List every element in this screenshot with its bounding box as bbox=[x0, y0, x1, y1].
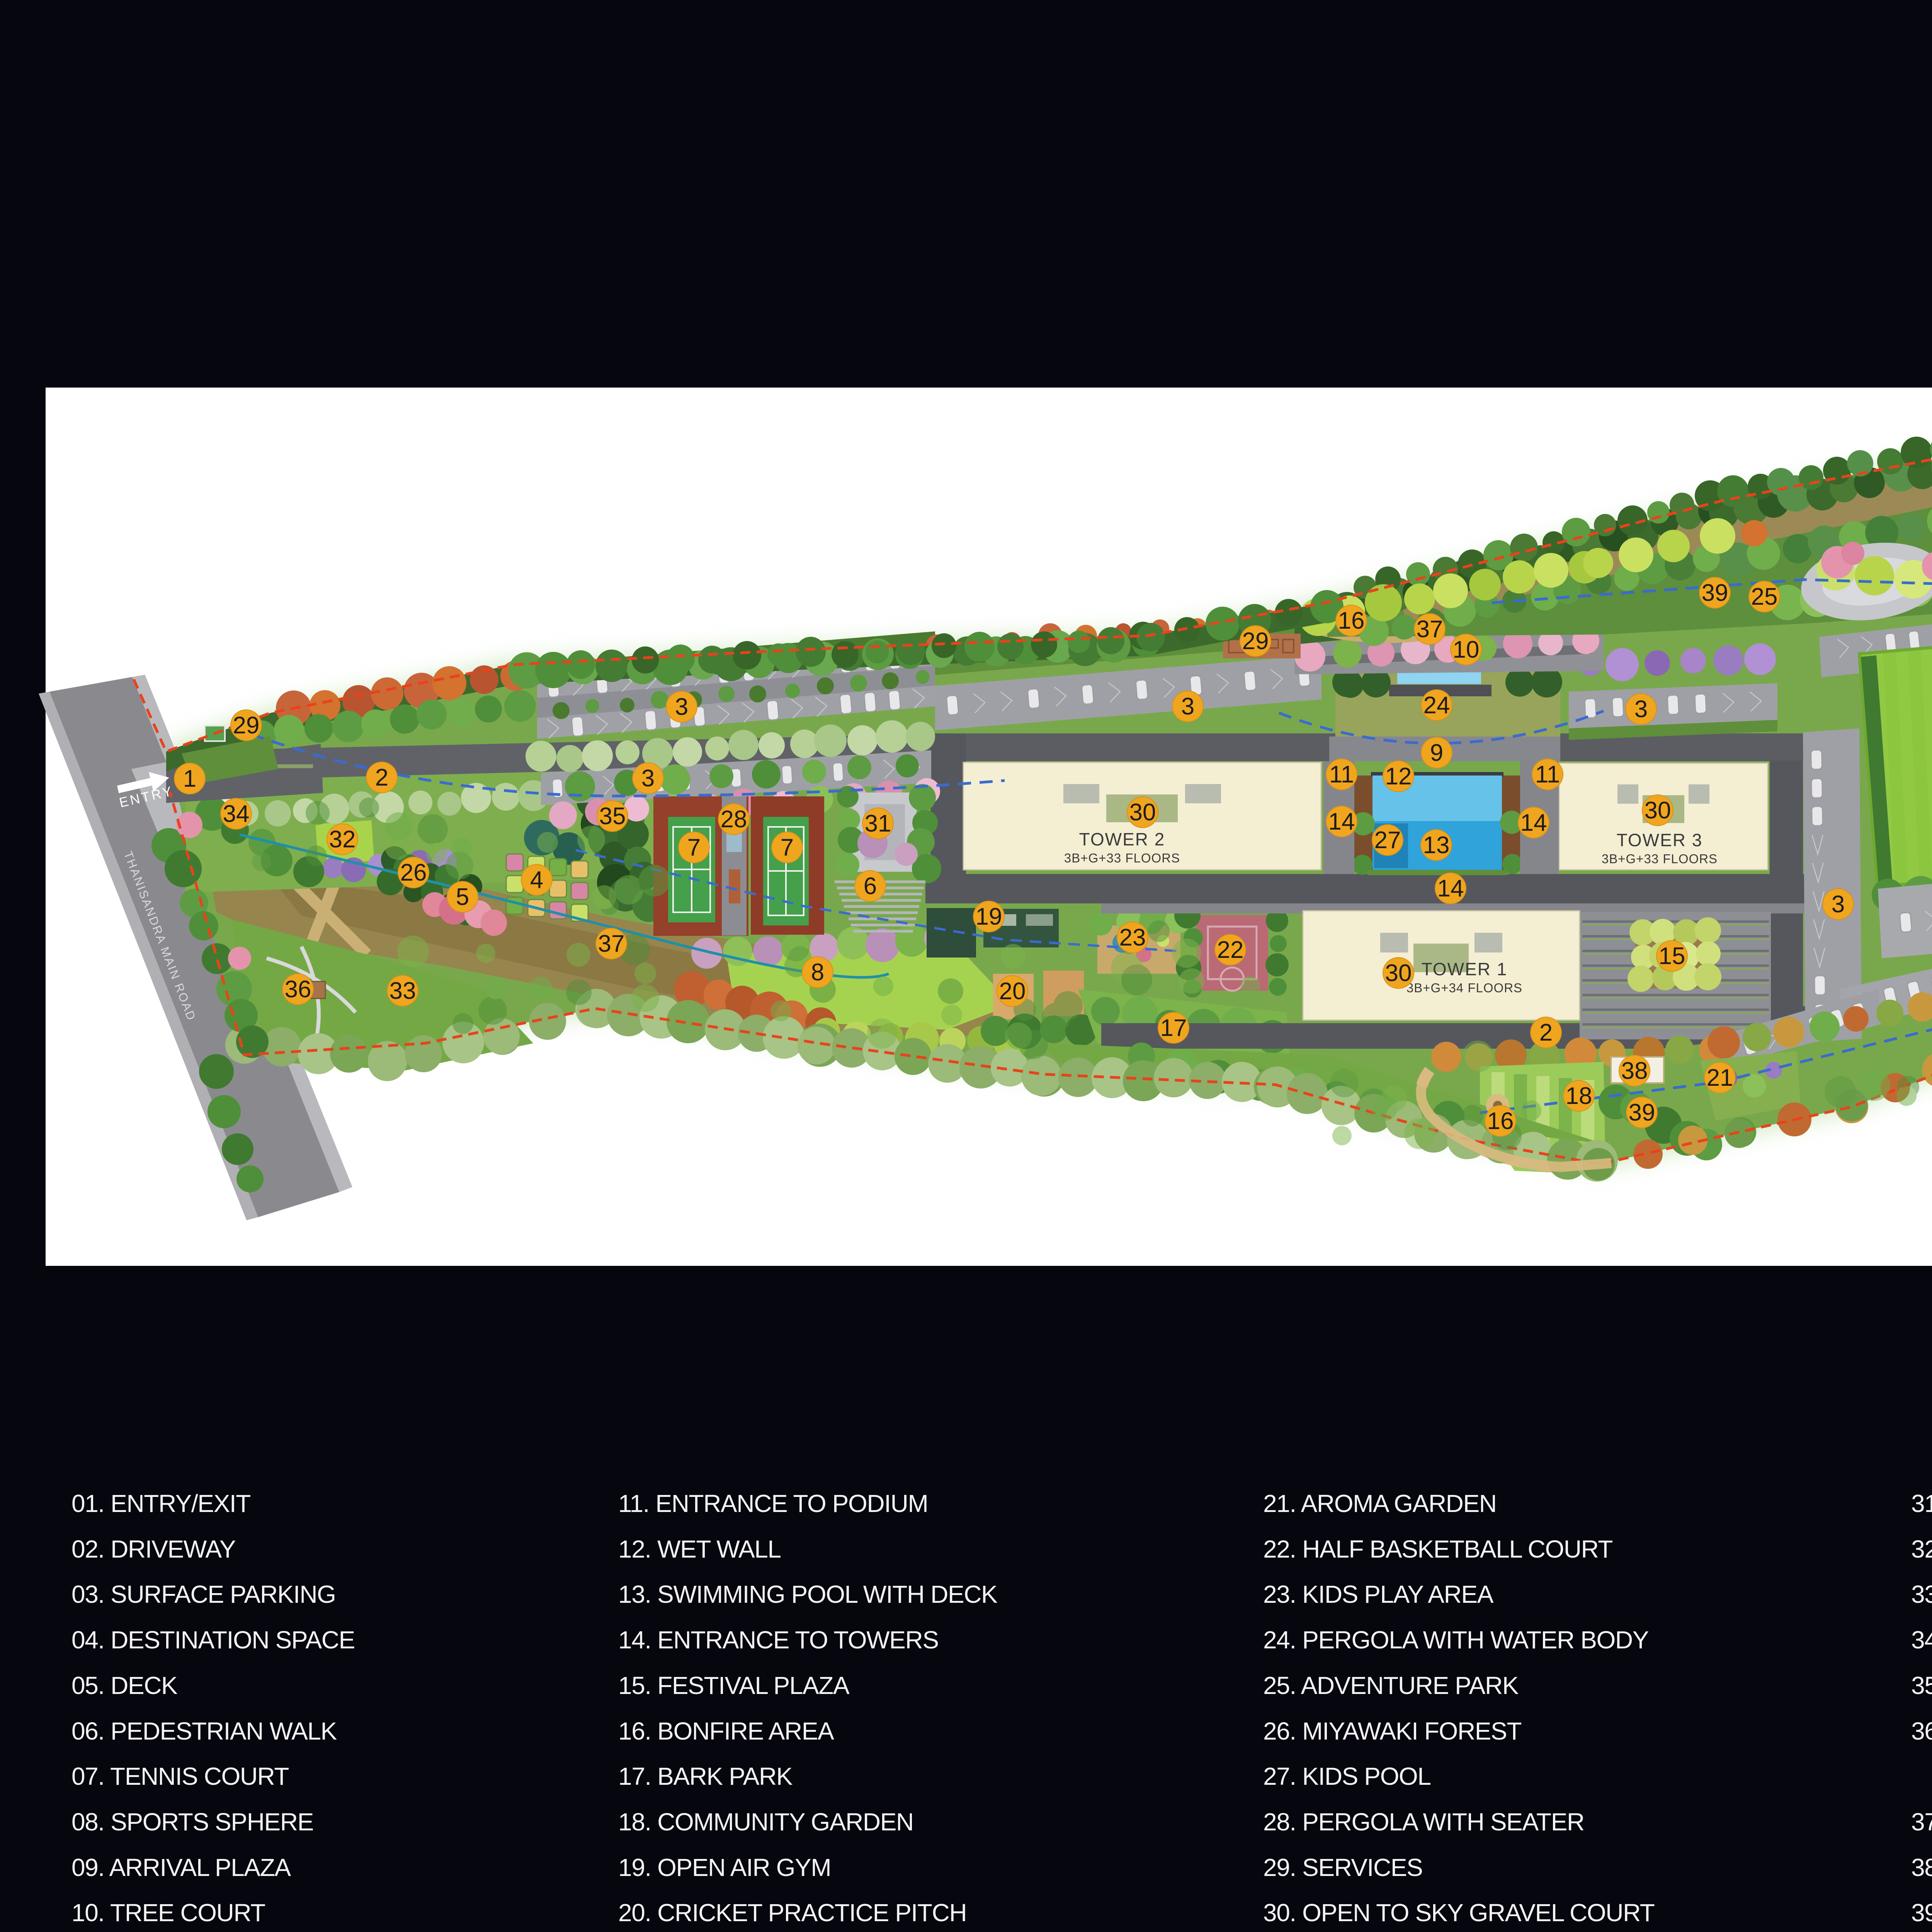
svg-text:15: 15 bbox=[1659, 943, 1685, 969]
svg-text:2: 2 bbox=[1539, 1019, 1553, 1046]
svg-text:33. EXPERIENCE WALKING TRAIL: 33. EXPERIENCE WALKING TRAIL bbox=[1911, 1580, 1932, 1608]
svg-text:26: 26 bbox=[400, 859, 427, 886]
svg-text:34: 34 bbox=[223, 801, 250, 827]
svg-text:37: 37 bbox=[1417, 616, 1443, 643]
svg-text:28: 28 bbox=[721, 806, 747, 833]
svg-text:30: 30 bbox=[1129, 799, 1156, 826]
svg-text:10: 10 bbox=[1453, 636, 1480, 663]
svg-text:28. PERGOLA WITH SEATER: 28. PERGOLA WITH SEATER bbox=[1263, 1808, 1584, 1836]
svg-text:14: 14 bbox=[1520, 810, 1547, 836]
svg-text:01. ENTRY/EXIT: 01. ENTRY/EXIT bbox=[71, 1490, 250, 1517]
svg-text:12. WET WALL: 12. WET WALL bbox=[618, 1535, 781, 1563]
svg-text:21. AROMA GARDEN: 21. AROMA GARDEN bbox=[1263, 1490, 1497, 1517]
svg-text:3B+G+33 FLOORS: 3B+G+33 FLOORS bbox=[1064, 851, 1180, 865]
svg-text:5: 5 bbox=[456, 884, 469, 910]
svg-text:30: 30 bbox=[1385, 960, 1412, 986]
svg-text:13: 13 bbox=[1423, 832, 1450, 859]
svg-text:35: 35 bbox=[599, 803, 626, 830]
svg-text:23. KIDS PLAY AREA: 23. KIDS PLAY AREA bbox=[1263, 1580, 1494, 1608]
svg-text:29. SERVICES: 29. SERVICES bbox=[1263, 1854, 1422, 1881]
svg-text:2: 2 bbox=[375, 764, 388, 791]
svg-text:TOWER 2: TOWER 2 bbox=[1079, 829, 1165, 849]
svg-text:24. PERGOLA WITH WATER BODY: 24. PERGOLA WITH WATER BODY bbox=[1263, 1626, 1649, 1654]
svg-text:09. ARRIVAL PLAZA: 09. ARRIVAL PLAZA bbox=[71, 1854, 291, 1881]
svg-text:TOWER 1: TOWER 1 bbox=[1422, 959, 1508, 979]
svg-text:17: 17 bbox=[1160, 1015, 1187, 1041]
svg-text:27: 27 bbox=[1374, 827, 1401, 854]
svg-text:04. DESTINATION SPACE: 04. DESTINATION SPACE bbox=[71, 1626, 355, 1654]
svg-text:31. SENIOR CITIZEN COURT: 31. SENIOR CITIZEN COURT bbox=[1911, 1490, 1932, 1517]
svg-text:14: 14 bbox=[1328, 808, 1355, 835]
svg-text:12: 12 bbox=[1385, 763, 1412, 790]
svg-text:11: 11 bbox=[1535, 761, 1560, 788]
svg-text:3: 3 bbox=[1634, 696, 1648, 723]
svg-text:16. BONFIRE AREA: 16. BONFIRE AREA bbox=[618, 1717, 834, 1745]
svg-text:07. TENNIS COURT: 07. TENNIS COURT bbox=[71, 1762, 289, 1790]
svg-text:11. ENTRANCE TO PODIUM: 11. ENTRANCE TO PODIUM bbox=[618, 1490, 928, 1517]
svg-text:8: 8 bbox=[811, 959, 824, 986]
svg-text:9: 9 bbox=[1430, 740, 1443, 766]
svg-text:33: 33 bbox=[389, 978, 416, 1004]
svg-text:29: 29 bbox=[1242, 628, 1269, 655]
svg-text:15. FESTIVAL PLAZA: 15. FESTIVAL PLAZA bbox=[618, 1672, 850, 1699]
svg-text:21: 21 bbox=[1707, 1065, 1733, 1091]
svg-text:26. MIYAWAKI FOREST: 26. MIYAWAKI FOREST bbox=[1263, 1717, 1521, 1745]
svg-text:17. BARK PARK: 17. BARK PARK bbox=[618, 1762, 793, 1790]
svg-text:34. SECURITY KIOSK: 34. SECURITY KIOSK bbox=[1911, 1626, 1932, 1654]
svg-text:3: 3 bbox=[1832, 891, 1845, 918]
svg-text:25: 25 bbox=[1751, 583, 1778, 610]
svg-text:3: 3 bbox=[1181, 693, 1194, 720]
svg-text:18. COMMUNITY GARDEN: 18. COMMUNITY GARDEN bbox=[618, 1808, 913, 1836]
svg-text:3B+G+34 FLOORS: 3B+G+34 FLOORS bbox=[1406, 981, 1522, 995]
svg-text:7: 7 bbox=[781, 834, 794, 861]
svg-text:35. TREE HOUSE: 35. TREE HOUSE bbox=[1911, 1672, 1932, 1699]
svg-text:39: 39 bbox=[1629, 1099, 1655, 1126]
svg-text:37. NATURE TRAIL: 37. NATURE TRAIL bbox=[1911, 1808, 1932, 1836]
svg-text:7: 7 bbox=[687, 834, 701, 861]
svg-text:05. DECK: 05. DECK bbox=[71, 1672, 177, 1699]
svg-text:27. KIDS POOL: 27. KIDS POOL bbox=[1263, 1762, 1431, 1790]
svg-text:16: 16 bbox=[1338, 607, 1365, 634]
svg-text:32. YOGA DECK WITH LAWN: 32. YOGA DECK WITH LAWN bbox=[1911, 1535, 1932, 1563]
svg-text:3: 3 bbox=[675, 694, 688, 720]
svg-text:11: 11 bbox=[1329, 761, 1354, 788]
svg-text:32: 32 bbox=[329, 826, 356, 853]
svg-text:14: 14 bbox=[1437, 875, 1464, 902]
svg-text:23: 23 bbox=[1119, 924, 1146, 951]
svg-text:37: 37 bbox=[598, 930, 625, 957]
svg-text:13. SWIMMING POOL WITH DECK: 13. SWIMMING POOL WITH DECK bbox=[618, 1580, 997, 1608]
svg-text:30: 30 bbox=[1645, 797, 1671, 824]
svg-text:19. OPEN AIR GYM: 19. OPEN AIR GYM bbox=[618, 1854, 831, 1881]
svg-text:29: 29 bbox=[233, 712, 260, 739]
svg-text:1: 1 bbox=[183, 765, 196, 792]
svg-text:39. CAMPING AREA: 39. CAMPING AREA bbox=[1911, 1899, 1932, 1927]
svg-text:14. ENTRANCE TO TOWERS: 14. ENTRANCE TO TOWERS bbox=[618, 1626, 939, 1654]
svg-text:20. CRICKET PRACTICE PITCH: 20. CRICKET PRACTICE PITCH bbox=[618, 1899, 966, 1927]
svg-text:39: 39 bbox=[1702, 580, 1728, 606]
svg-text:22. HALF BASKETBALL COURT: 22. HALF BASKETBALL COURT bbox=[1263, 1535, 1612, 1563]
svg-text:31: 31 bbox=[865, 810, 891, 837]
svg-text:08. SPORTS SPHERE: 08. SPORTS SPHERE bbox=[71, 1808, 313, 1836]
svg-text:3: 3 bbox=[641, 765, 655, 792]
svg-text:38: 38 bbox=[1621, 1058, 1648, 1084]
svg-text:36. TEMPLE OF BODY AND SOUL: 36. TEMPLE OF BODY AND SOUL bbox=[1911, 1717, 1932, 1745]
svg-text:16: 16 bbox=[1487, 1108, 1514, 1134]
svg-text:30. OPEN TO SKY GRAVEL COURT: 30. OPEN TO SKY GRAVEL COURT bbox=[1263, 1899, 1655, 1927]
svg-text:20: 20 bbox=[999, 978, 1026, 1005]
svg-text:25. ADVENTURE PARK: 25. ADVENTURE PARK bbox=[1263, 1672, 1519, 1699]
svg-text:10. TREE COURT: 10. TREE COURT bbox=[71, 1899, 265, 1927]
svg-text:3B+G+33 FLOORS: 3B+G+33 FLOORS bbox=[1602, 852, 1718, 866]
svg-text:36: 36 bbox=[285, 976, 311, 1003]
svg-text:06. PEDESTRIAN WALK: 06. PEDESTRIAN WALK bbox=[71, 1717, 337, 1745]
svg-text:6: 6 bbox=[864, 873, 877, 900]
svg-text:22: 22 bbox=[1217, 937, 1244, 963]
svg-text:18: 18 bbox=[1566, 1083, 1592, 1109]
svg-text:24: 24 bbox=[1423, 692, 1450, 719]
svg-text:TOWER 3: TOWER 3 bbox=[1617, 830, 1703, 850]
svg-text:4: 4 bbox=[530, 867, 543, 893]
svg-text:19: 19 bbox=[976, 903, 1002, 930]
svg-text:02. DRIVEWAY: 02. DRIVEWAY bbox=[71, 1535, 236, 1563]
svg-text:03. SURFACE PARKING: 03. SURFACE PARKING bbox=[71, 1580, 336, 1608]
svg-text:38. AIR FILTRATION TOWER: 38. AIR FILTRATION TOWER bbox=[1911, 1854, 1932, 1881]
